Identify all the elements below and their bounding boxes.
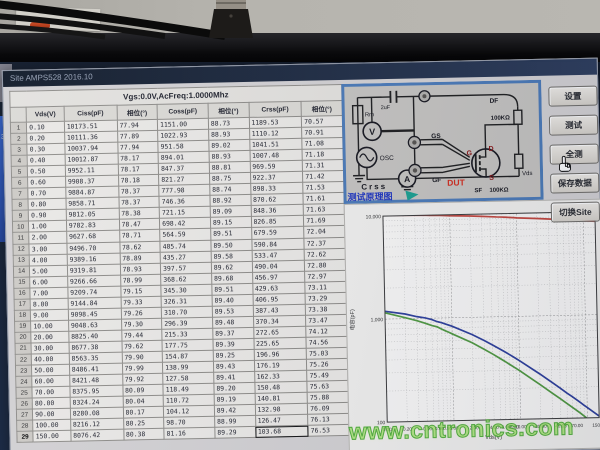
window-title: Site AMPS528 2016.10 (10, 72, 93, 83)
table-cell[interactable]: 89.25 (213, 349, 254, 361)
table-cell[interactable]: 72.37 (304, 237, 345, 249)
table-cell[interactable]: 71.63 (303, 204, 344, 216)
button-1[interactable]: 设置 (548, 86, 597, 107)
drain-label: D (488, 146, 493, 153)
svg-text:1,000: 1,000 (371, 317, 384, 323)
table-cell[interactable]: 73.47 (306, 314, 347, 326)
table-cell[interactable]: 76.09 (308, 403, 349, 415)
table-cell[interactable]: 75.49 (307, 369, 348, 381)
column-header-4: Coss(pF) (157, 103, 208, 119)
column-header-1: Vds(V) (26, 106, 64, 122)
test-circuit-diagram: Rm 2uF V OSC A GS GF DF SF 100KΩ 100KΩ V… (341, 80, 543, 204)
table-cell[interactable]: 81.16 (164, 428, 215, 440)
table-cell[interactable]: 78.18 (118, 175, 159, 187)
capacitance-chart: 10,0001,0001000.100.200.400.600.801.002.… (344, 199, 600, 450)
button-2[interactable]: 测试 (549, 115, 598, 136)
resistor-bottom-label: 100KΩ (489, 187, 508, 193)
table-cell[interactable]: 0.10 (27, 121, 65, 133)
cap-table-body: 10.1010173.5177.941151.0088.731189.5370.… (10, 115, 349, 442)
gate-label: G (467, 150, 473, 157)
osc-label: OSC (380, 155, 395, 162)
row-number[interactable]: 29 (17, 431, 33, 442)
app-window: Site AMPS528 2016.10 Vgs:0.0V,AcFreq:1.0… (2, 58, 600, 450)
table-cell[interactable]: 0.90 (28, 210, 66, 222)
chart-svg: 10,0001,0001000.100.200.400.600.801.002.… (345, 200, 600, 450)
table-cell[interactable]: 76.13 (308, 414, 349, 426)
table-cell[interactable]: 78.62 (119, 241, 160, 253)
table-cell[interactable]: 78.93 (120, 263, 161, 275)
row-number[interactable]: 21 (15, 343, 31, 354)
table-cell[interactable]: 79.99 (122, 362, 163, 374)
table-cell[interactable]: 80.09 (122, 384, 163, 396)
watermark: www.cntronics.com (349, 413, 574, 445)
table-cell[interactable]: 80.04 (123, 395, 164, 407)
table-cell[interactable]: 79.33 (121, 296, 162, 308)
row-number[interactable]: 8 (12, 199, 28, 210)
row-number[interactable]: 16 (14, 288, 30, 299)
table-cell[interactable]: 71.53 (303, 182, 344, 194)
table-cell[interactable]: 0.50 (28, 165, 66, 177)
row-number[interactable]: 20 (15, 332, 31, 343)
table-cell[interactable]: 150.00 (33, 431, 71, 443)
button-4[interactable]: 保存数据 (550, 173, 599, 194)
row-number[interactable]: 10 (12, 221, 28, 232)
row-number[interactable]: 4 (11, 155, 27, 166)
table-cell[interactable]: 8.00 (30, 298, 68, 310)
table-cell[interactable]: 89.50 (211, 239, 252, 251)
table-cell[interactable]: 4.00 (29, 254, 67, 266)
table-cell[interactable]: 0.40 (27, 154, 65, 166)
table-cell[interactable]: 80.00 (32, 397, 70, 409)
diagram-caption: 测试原理图 (347, 190, 392, 202)
resistor-top-label: 100KΩ (491, 115, 510, 121)
table-cell[interactable]: 88.93 (209, 151, 250, 163)
row-number[interactable]: 18 (14, 310, 30, 321)
row-number[interactable]: 27 (16, 409, 32, 420)
table-cell[interactable]: 78.99 (120, 274, 161, 286)
gs-label: GS (431, 133, 441, 140)
table-cell[interactable]: 73.11 (305, 281, 346, 293)
svg-text:10,000: 10,000 (366, 214, 382, 220)
table-cell[interactable]: 89.29 (215, 427, 256, 439)
row-number[interactable]: 28 (17, 420, 33, 431)
row-number-header (10, 107, 27, 122)
table-cell[interactable]: 78.37 (118, 186, 159, 198)
table-cell[interactable]: 20.00 (31, 331, 69, 343)
table-cell[interactable]: 89.43 (213, 360, 254, 372)
table-cell[interactable]: 89.62 (211, 261, 252, 273)
table-cell[interactable]: 70.00 (32, 386, 70, 398)
source-label: S (489, 175, 494, 182)
table-cell[interactable]: 89.58 (211, 250, 252, 262)
df-label: DF (489, 98, 498, 105)
table-cell[interactable]: 72.62 (304, 248, 345, 260)
table-cell[interactable]: 72.97 (305, 270, 346, 282)
table-cell[interactable]: 80.25 (123, 418, 164, 430)
table-cell[interactable]: 88.75 (209, 173, 250, 185)
table-cell[interactable]: 50.00 (32, 364, 70, 376)
table-cell[interactable]: 79.92 (122, 373, 163, 385)
table-cell[interactable]: 89.48 (212, 316, 253, 328)
table-cell[interactable]: 89.41 (214, 371, 255, 383)
table-cell[interactable]: 79.26 (121, 307, 162, 319)
row-number[interactable]: 15 (14, 277, 30, 288)
table-cell[interactable]: 90.00 (33, 408, 71, 420)
table-cell[interactable]: 77.94 (117, 141, 158, 153)
table-cell[interactable]: 71.69 (304, 215, 345, 227)
vds-label: Vds (522, 171, 532, 177)
table-cell[interactable]: 89.19 (214, 394, 255, 406)
table-cell[interactable]: 100.00 (33, 419, 71, 431)
table-cell[interactable]: 79.15 (120, 285, 161, 297)
row-number[interactable]: 22 (15, 354, 31, 365)
table-cell[interactable]: 78.17 (118, 164, 159, 176)
row-number[interactable]: 23 (15, 365, 31, 376)
table-cell[interactable]: 71.08 (302, 138, 343, 150)
row-number[interactable]: 14 (13, 266, 29, 277)
table-cell[interactable]: 0.70 (28, 188, 66, 200)
dut-label: DUT (447, 177, 465, 187)
table-cell[interactable]: 70.57 (302, 115, 343, 127)
table-cell[interactable]: 79.44 (121, 329, 162, 341)
table-cell[interactable]: 71.61 (303, 193, 344, 205)
table-cell[interactable]: 10.00 (31, 320, 69, 332)
column-header-2: Ciss(pF) (64, 105, 117, 121)
svg-text:150.00: 150.00 (592, 422, 600, 427)
table-cell[interactable]: 88.99 (214, 416, 255, 428)
table-cell[interactable]: 71.31 (303, 160, 344, 172)
table-cell[interactable]: 78.71 (119, 230, 160, 242)
table-cell[interactable]: 70.91 (302, 127, 343, 139)
table-cell[interactable]: 6.00 (30, 276, 68, 288)
table-cell[interactable]: 3.00 (29, 243, 67, 255)
capacitance-table: Vgs:0.0V,AcFreq:1.0000Mhz Vds(V)Ciss(pF)… (9, 84, 349, 443)
row-number[interactable]: 13 (13, 255, 29, 266)
table-cell[interactable]: 89.15 (210, 217, 251, 229)
table-cell[interactable]: 0.80 (28, 199, 66, 211)
column-header-5: 相位(°) (208, 102, 249, 118)
row-number[interactable]: 11 (13, 233, 29, 244)
svg-text:电容(pF): 电容(pF) (348, 309, 356, 330)
row-number[interactable]: 7 (12, 188, 28, 199)
table-cell[interactable]: 79.62 (122, 340, 163, 352)
table-cell[interactable]: 0.30 (27, 143, 65, 155)
table-cell[interactable]: 2.00 (29, 232, 67, 244)
table-cell[interactable]: 7.00 (30, 287, 68, 299)
table-cell[interactable]: 80.38 (123, 429, 164, 441)
table-cell[interactable]: 1.00 (29, 221, 67, 233)
table-cell[interactable]: 89.09 (210, 206, 251, 218)
column-header-3: 相位(°) (117, 104, 158, 120)
row-number[interactable]: 1 (10, 122, 26, 133)
table-cell[interactable]: 74.56 (306, 336, 347, 348)
table-cell[interactable]: 30.00 (31, 342, 69, 354)
table-cell[interactable]: 78.17 (118, 152, 159, 164)
row-number[interactable]: 3 (11, 144, 27, 155)
microphone-object (208, 0, 260, 38)
table-cell[interactable]: 76.53 (308, 425, 349, 437)
cables (0, 0, 340, 40)
column-header-7: 相位(°) (301, 100, 342, 116)
ammeter-label: A (404, 174, 410, 184)
monitor-photo: 34 Site AMPS528 2016.10 Vgs:0.0V,AcFreq:… (0, 0, 600, 450)
table-cell[interactable]: 89.40 (212, 294, 253, 306)
table-cell[interactable]: 74.12 (306, 325, 347, 337)
hand-cursor-icon (557, 155, 573, 173)
gf-label: GF (432, 177, 441, 184)
table-cell[interactable]: 8076.42 (71, 429, 124, 441)
table-cell[interactable]: 60.00 (32, 375, 70, 387)
table-cell[interactable]: 79.90 (122, 351, 163, 363)
table-cell[interactable]: 78.38 (119, 208, 160, 220)
table-cell[interactable]: 89.68 (211, 272, 252, 284)
table-cell[interactable]: 89.37 (213, 327, 254, 339)
table-cell[interactable]: 79.30 (121, 318, 162, 330)
row-number[interactable]: 5 (11, 166, 27, 177)
row-number[interactable]: 9 (12, 210, 28, 221)
voltmeter-label: V (369, 127, 375, 137)
table-cell[interactable]: 89.53 (212, 305, 253, 317)
table-cell[interactable]: 89.20 (214, 382, 255, 394)
table-cell[interactable]: 78.89 (120, 252, 161, 264)
table-cell[interactable]: 75.63 (307, 381, 348, 393)
table-cell[interactable]: 40.00 (31, 353, 69, 365)
cap-label: 2uF (381, 105, 391, 111)
row-number[interactable]: 6 (12, 177, 28, 188)
table-cell[interactable]: 89.39 (213, 338, 254, 350)
row-number[interactable]: 26 (16, 398, 32, 409)
table-cell[interactable]: 88.73 (208, 117, 249, 129)
row-number[interactable]: 2 (11, 133, 27, 144)
crss-label: Crss (361, 182, 387, 192)
table-cell[interactable]: 89.02 (209, 140, 250, 152)
sf-label: SF (474, 188, 482, 194)
table-cell[interactable]: 9.00 (31, 309, 69, 321)
table-cell[interactable]: 88.81 (209, 162, 250, 174)
table-cell[interactable]: 78.47 (119, 219, 160, 231)
table-cell[interactable]: 73.38 (306, 303, 347, 315)
button-5[interactable]: 切换Site (551, 202, 600, 223)
table-cell[interactable]: 80.17 (123, 406, 164, 418)
table-cell[interactable]: 78.37 (119, 197, 160, 209)
table-cell[interactable]: 75.88 (307, 392, 348, 404)
table-cell[interactable]: 71.42 (303, 171, 344, 183)
row-number[interactable]: 25 (16, 387, 32, 398)
table-cell[interactable]: 75.03 (306, 347, 347, 359)
table-cell[interactable]: 77.94 (117, 119, 158, 131)
table-cell[interactable]: 88.74 (210, 184, 251, 196)
column-header-6: Crss(pF) (249, 101, 302, 117)
table-cell[interactable]: 73.29 (305, 292, 346, 304)
row-number[interactable]: 17 (14, 299, 30, 310)
rm-label: Rm (365, 112, 374, 118)
table-cell[interactable]: 75.26 (307, 358, 348, 370)
table-cell[interactable]: 89.42 (214, 405, 255, 417)
table-cell[interactable]: 72.80 (305, 259, 346, 271)
table-cell[interactable]: 5.00 (30, 265, 68, 277)
row-number[interactable]: 24 (16, 376, 32, 387)
table-cell[interactable]: 89.51 (211, 228, 252, 240)
row-number[interactable]: 12 (13, 244, 29, 255)
row-number[interactable]: 19 (15, 321, 31, 332)
table-cell[interactable]: 0.60 (28, 177, 66, 189)
table-cell[interactable]: 88.92 (210, 195, 251, 207)
table-cell[interactable]: 77.89 (117, 130, 158, 142)
table-cell[interactable]: 71.18 (302, 149, 343, 161)
table-cell[interactable]: 88.93 (208, 128, 249, 140)
table-cell[interactable]: 0.20 (27, 132, 65, 144)
table-cell[interactable]: 72.04 (304, 226, 345, 238)
table-cell[interactable]: 103.68 (255, 426, 308, 438)
table-cell[interactable]: 89.51 (212, 283, 253, 295)
